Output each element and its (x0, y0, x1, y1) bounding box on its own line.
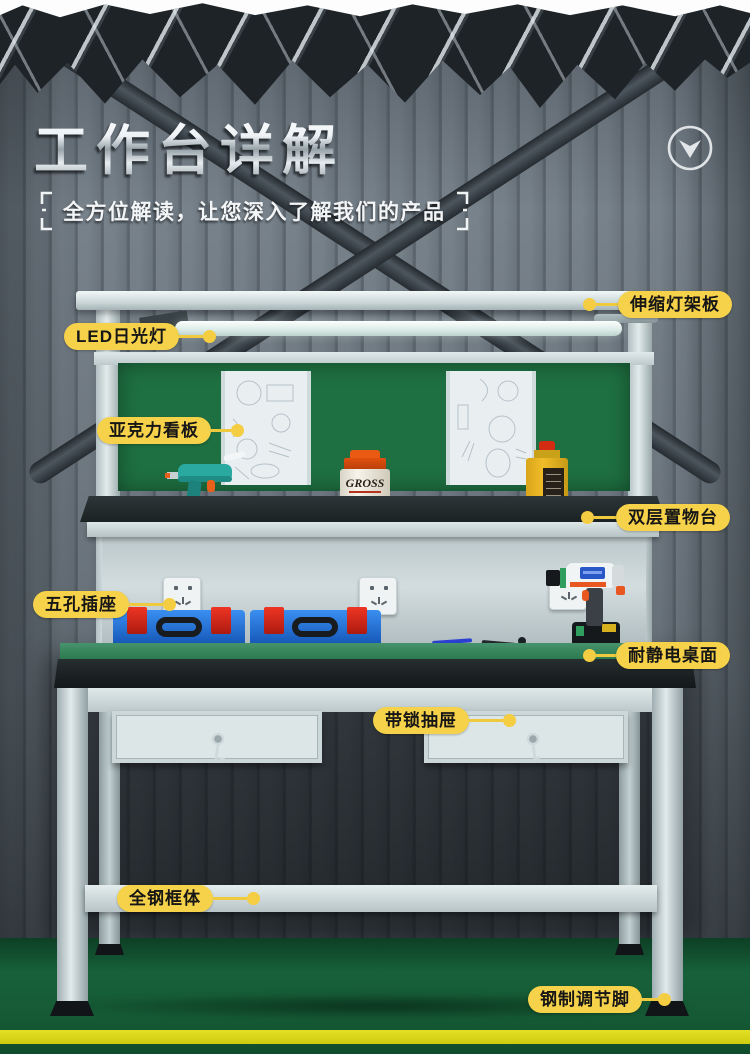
double-shelf-edge (87, 522, 659, 537)
left-locking-drawer (112, 711, 322, 763)
callout-line (211, 429, 231, 432)
callout-dot (503, 714, 516, 727)
callout-line (213, 897, 247, 900)
callout-label: 双层置物台 (616, 504, 730, 531)
led-light-tube (175, 321, 622, 336)
bracket-right-icon (455, 190, 471, 232)
callout-line (469, 719, 503, 722)
callout-line (642, 998, 658, 1001)
drawer-key-icon (210, 733, 226, 769)
callout-label: 亚克力看板 (97, 417, 211, 444)
callout-label: 钢制调节脚 (528, 986, 642, 1013)
callout-light-rack: 伸缩灯架板 (583, 290, 732, 318)
callout-label: LED日光灯 (64, 323, 179, 350)
bracket-left-icon (38, 190, 54, 232)
front-left-adjustable-foot (50, 1001, 94, 1016)
callout-dot (203, 330, 216, 343)
chevron-down-circle-icon (662, 120, 718, 181)
callout-locking-drawer: 带锁抽屉 (373, 706, 516, 734)
rear-right-foot (615, 944, 644, 955)
subtitle-text: 全方位解读，让您深入了解我们的产品 (63, 196, 446, 226)
callout-dot (658, 993, 671, 1006)
callout-dot (583, 649, 596, 662)
front-left-leg (57, 686, 88, 1004)
page-title: 工作台详解 (34, 106, 344, 185)
callout-dot (583, 298, 596, 311)
subtitle: 全方位解读，让您深入了解我们的产品 (38, 190, 471, 232)
telescopic-light-rack-bar (76, 291, 642, 310)
acrylic-board-right (446, 371, 536, 485)
callout-double-shelf: 双层置物台 (581, 503, 730, 531)
floor-warning-stripe (0, 1030, 750, 1044)
drawer-key-icon (525, 733, 541, 769)
callout-adjustable-feet: 钢制调节脚 (528, 985, 671, 1013)
rear-left-foot (95, 944, 124, 955)
jar-label: GROSS (340, 476, 390, 491)
callout-dot (581, 511, 594, 524)
callout-label: 全钢框体 (117, 885, 213, 912)
callout-line (594, 516, 616, 519)
callout-line (179, 335, 203, 338)
callout-label: 五孔插座 (33, 591, 129, 618)
callout-dot (163, 598, 176, 611)
callout-five-hole-socket: 五孔插座 (33, 590, 176, 618)
callout-led-light: LED日光灯 (64, 322, 216, 350)
callout-dot (231, 424, 244, 437)
product-detail-poster: 工作台详解 全方位解读，让您深入了解我们的产品 (0, 0, 750, 1054)
callout-line (596, 654, 616, 657)
callout-label: 伸缩灯架板 (618, 291, 732, 318)
double-shelf-top-surface (80, 496, 666, 522)
callout-line (129, 603, 163, 606)
callout-antistatic-desktop: 耐静电桌面 (583, 641, 730, 669)
front-right-leg (652, 686, 683, 1004)
callout-line (596, 303, 618, 306)
callout-steel-frame: 全钢框体 (117, 884, 260, 912)
callout-dot (247, 892, 260, 905)
callout-label: 带锁抽屉 (373, 707, 469, 734)
callout-acrylic-board: 亚克力看板 (97, 416, 244, 444)
callout-label: 耐静电桌面 (616, 642, 730, 669)
